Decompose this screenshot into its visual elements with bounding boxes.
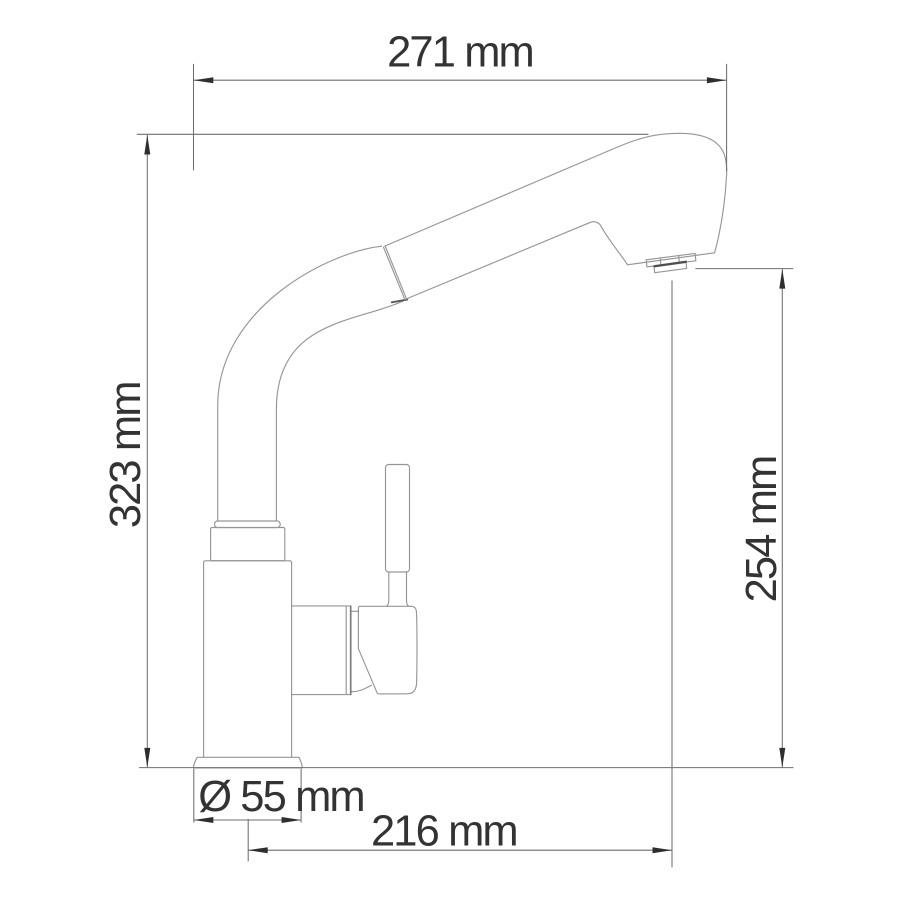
- svg-text:216 mm: 216 mm: [371, 808, 517, 856]
- svg-text:Ø 55 mm: Ø 55 mm: [198, 773, 364, 821]
- svg-text:271 mm: 271 mm: [387, 28, 533, 76]
- svg-text:254 mm: 254 mm: [738, 457, 786, 603]
- svg-text:323 mm: 323 mm: [102, 382, 150, 528]
